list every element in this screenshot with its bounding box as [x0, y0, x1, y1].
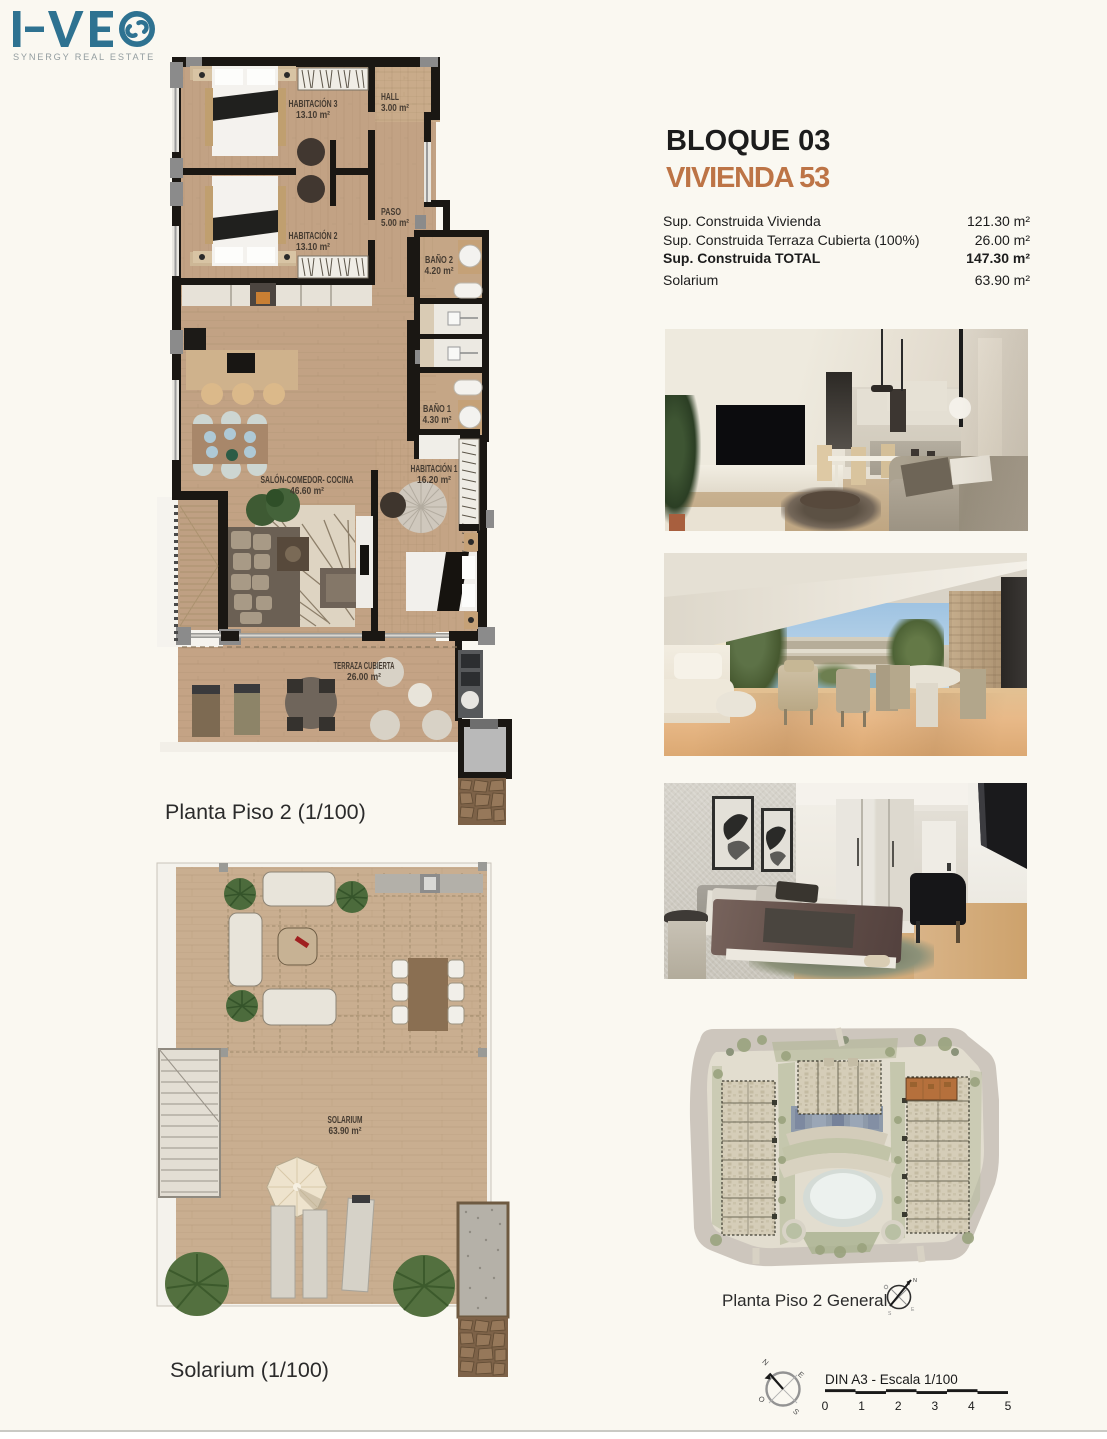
- svg-text:HABITACIÓN 1: HABITACIÓN 1: [411, 462, 458, 475]
- svg-text:PASO: PASO: [381, 207, 401, 218]
- svg-text:N: N: [913, 1278, 917, 1284]
- svg-text:3.00 m²: 3.00 m²: [381, 103, 410, 114]
- svg-text:26.00 m²: 26.00 m²: [347, 672, 382, 683]
- svg-text:S: S: [791, 1407, 801, 1417]
- svg-text:13.10 m²: 13.10 m²: [296, 110, 331, 121]
- svg-text:HABITACIÓN 2: HABITACIÓN 2: [289, 229, 338, 242]
- svg-text:N: N: [760, 1357, 770, 1367]
- svg-text:E: E: [911, 1307, 915, 1313]
- svg-text:46.60 m²: 46.60 m²: [290, 486, 325, 497]
- svg-text:BAÑO 1: BAÑO 1: [423, 402, 451, 415]
- svg-text:0: 0: [822, 1399, 829, 1413]
- svg-text:4: 4: [968, 1399, 975, 1413]
- svg-text:5.00 m²: 5.00 m²: [381, 218, 410, 229]
- svg-text:TERRAZA CUBIERTA: TERRAZA CUBIERTA: [334, 661, 395, 672]
- svg-text:13.10 m²: 13.10 m²: [296, 242, 331, 253]
- svg-text:2: 2: [895, 1399, 902, 1413]
- svg-text:16.20 m²: 16.20 m²: [417, 475, 452, 486]
- svg-text:SALÓN-COMEDOR- COCINA: SALÓN-COMEDOR- COCINA: [261, 473, 354, 486]
- svg-text:63.90 m²: 63.90 m²: [329, 1126, 363, 1137]
- svg-text:E: E: [796, 1370, 806, 1380]
- svg-text:BAÑO 2: BAÑO 2: [425, 253, 453, 266]
- svg-text:4.30 m²: 4.30 m²: [423, 415, 453, 426]
- svg-text:O: O: [756, 1394, 766, 1405]
- svg-text:3: 3: [931, 1399, 938, 1413]
- svg-text:5: 5: [1005, 1399, 1012, 1413]
- svg-text:SYNERGY REAL ESTATE: SYNERGY REAL ESTATE: [13, 52, 155, 62]
- svg-text:4.20 m²: 4.20 m²: [425, 266, 455, 277]
- svg-text:1: 1: [858, 1399, 865, 1413]
- svg-text:SOLARIUM: SOLARIUM: [328, 1115, 363, 1126]
- svg-text:HABITACIÓN 3: HABITACIÓN 3: [289, 97, 338, 110]
- svg-text:S: S: [888, 1311, 892, 1316]
- svg-text:HALL: HALL: [381, 92, 399, 103]
